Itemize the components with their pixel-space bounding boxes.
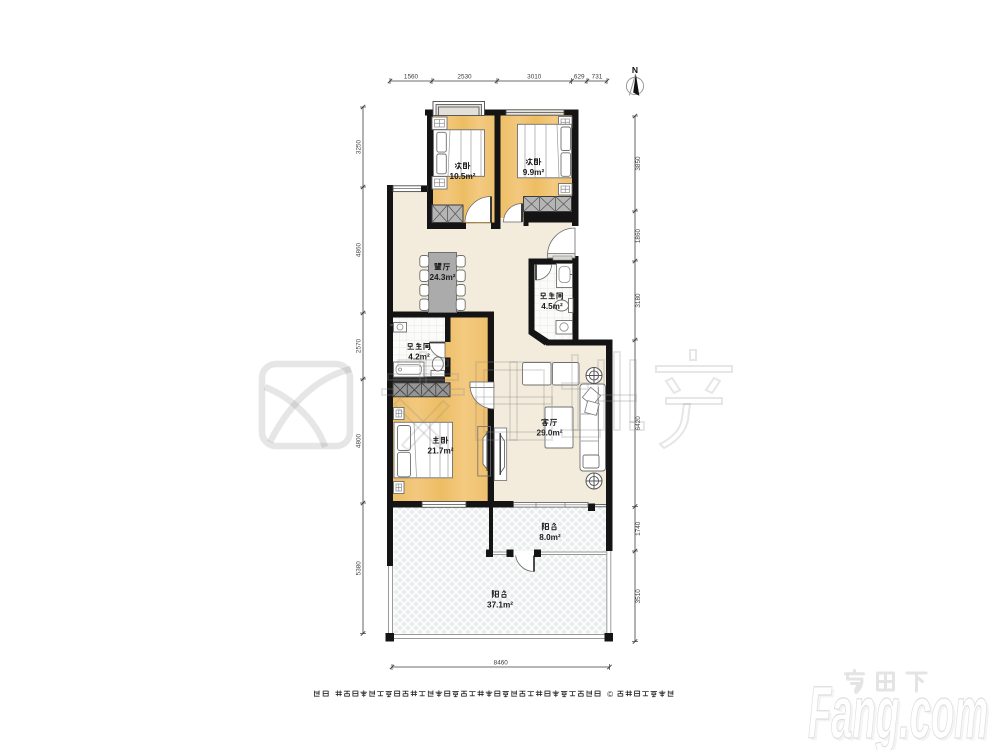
svg-text:3180: 3180	[635, 293, 642, 308]
svg-text:21.7m²: 21.7m²	[428, 447, 454, 456]
svg-text:3850: 3850	[635, 156, 642, 171]
svg-text:4800: 4800	[356, 433, 363, 448]
svg-text:8.0m²: 8.0m²	[539, 533, 561, 542]
svg-text:3250: 3250	[356, 139, 363, 154]
svg-text:3510: 3510	[635, 589, 642, 604]
svg-text:10.5m²: 10.5m²	[450, 172, 476, 181]
svg-text:9.9m²: 9.9m²	[523, 168, 545, 177]
svg-text:2570: 2570	[356, 338, 363, 353]
svg-text:2530: 2530	[457, 74, 472, 81]
svg-text:N: N	[632, 65, 638, 75]
svg-text:©: ©	[607, 690, 613, 699]
svg-text:1740: 1740	[635, 521, 642, 536]
svg-text:8460: 8460	[494, 660, 509, 667]
svg-text:1860: 1860	[635, 228, 642, 243]
svg-text:Fang.com: Fang.com	[808, 671, 988, 750]
svg-text:3010: 3010	[527, 74, 542, 81]
svg-text:24.3m²: 24.3m²	[430, 273, 456, 282]
svg-text:1560: 1560	[404, 74, 419, 81]
svg-text:4860: 4860	[356, 242, 363, 257]
svg-text:731: 731	[592, 74, 603, 81]
svg-text:37.1m²: 37.1m²	[487, 601, 513, 610]
svg-text:629: 629	[574, 74, 585, 81]
svg-text:4.5m²: 4.5m²	[541, 302, 563, 311]
svg-text:5380: 5380	[356, 561, 363, 576]
